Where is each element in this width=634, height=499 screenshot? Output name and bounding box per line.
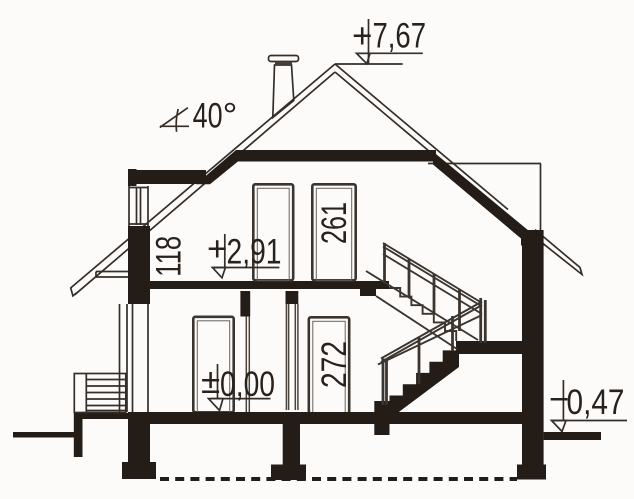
svg-text:0,47: 0,47: [567, 383, 625, 422]
svg-text:272: 272: [315, 341, 354, 388]
svg-text:°: °: [223, 97, 238, 136]
svg-text:0,00: 0,00: [220, 365, 275, 404]
svg-text:118: 118: [150, 236, 189, 277]
svg-text:2,91: 2,91: [227, 233, 282, 272]
svg-text:7,67: 7,67: [373, 17, 427, 56]
svg-text:+: +: [352, 17, 372, 56]
svg-text:40: 40: [193, 97, 223, 136]
svg-text:+: +: [207, 230, 227, 269]
svg-text:261: 261: [315, 202, 354, 244]
svg-text:±: ±: [201, 362, 220, 401]
